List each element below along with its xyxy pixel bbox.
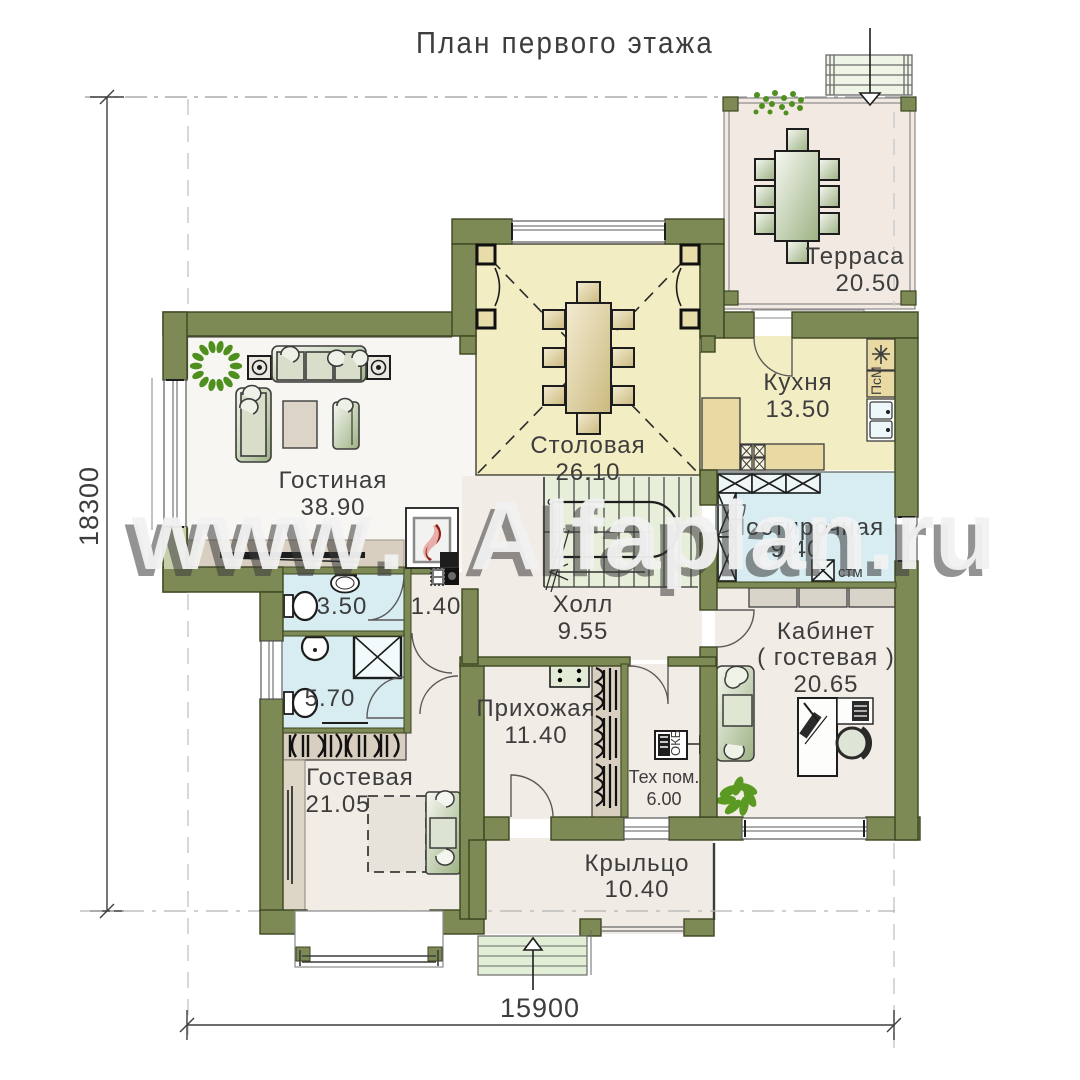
- svg-text:Тех пом.: Тех пом.: [629, 767, 700, 787]
- svg-text:20.50: 20.50: [835, 270, 900, 297]
- svg-text:9.55: 9.55: [558, 618, 609, 645]
- svg-text:13.50: 13.50: [765, 396, 830, 423]
- svg-text:5.70: 5.70: [305, 685, 356, 712]
- svg-text:11.40: 11.40: [504, 722, 567, 749]
- svg-text:Крыльцо: Крыльцо: [585, 850, 690, 877]
- svg-text:3.50: 3.50: [317, 593, 368, 620]
- svg-text:ОКБ: ОКБ: [668, 730, 683, 756]
- svg-text:.: .: [378, 481, 405, 590]
- svg-text:www: www: [131, 481, 372, 590]
- svg-text:Alfaplan.ru: Alfaplan.ru: [470, 481, 996, 590]
- svg-text:План первого этажа: План первого этажа: [416, 25, 714, 60]
- svg-text:15900: 15900: [500, 993, 580, 1023]
- svg-text:18300: 18300: [74, 466, 104, 546]
- svg-text:Столовая: Столовая: [530, 432, 645, 459]
- svg-text:( гостевая ): ( гостевая ): [757, 644, 895, 671]
- svg-text:Кабинет: Кабинет: [777, 618, 875, 645]
- svg-text:ПсМ: ПсМ: [868, 366, 884, 395]
- svg-text:10.40: 10.40: [604, 876, 669, 903]
- svg-text:20.65: 20.65: [793, 671, 858, 698]
- svg-text:Терраса: Терраса: [805, 243, 904, 270]
- svg-text:21.05: 21.05: [305, 791, 370, 818]
- svg-text:Гостевая: Гостевая: [306, 764, 414, 791]
- svg-text:Кухня: Кухня: [763, 369, 832, 396]
- svg-text:6.00: 6.00: [646, 789, 681, 809]
- svg-text:Прихожая: Прихожая: [476, 695, 595, 722]
- svg-text:1.40: 1.40: [411, 593, 462, 620]
